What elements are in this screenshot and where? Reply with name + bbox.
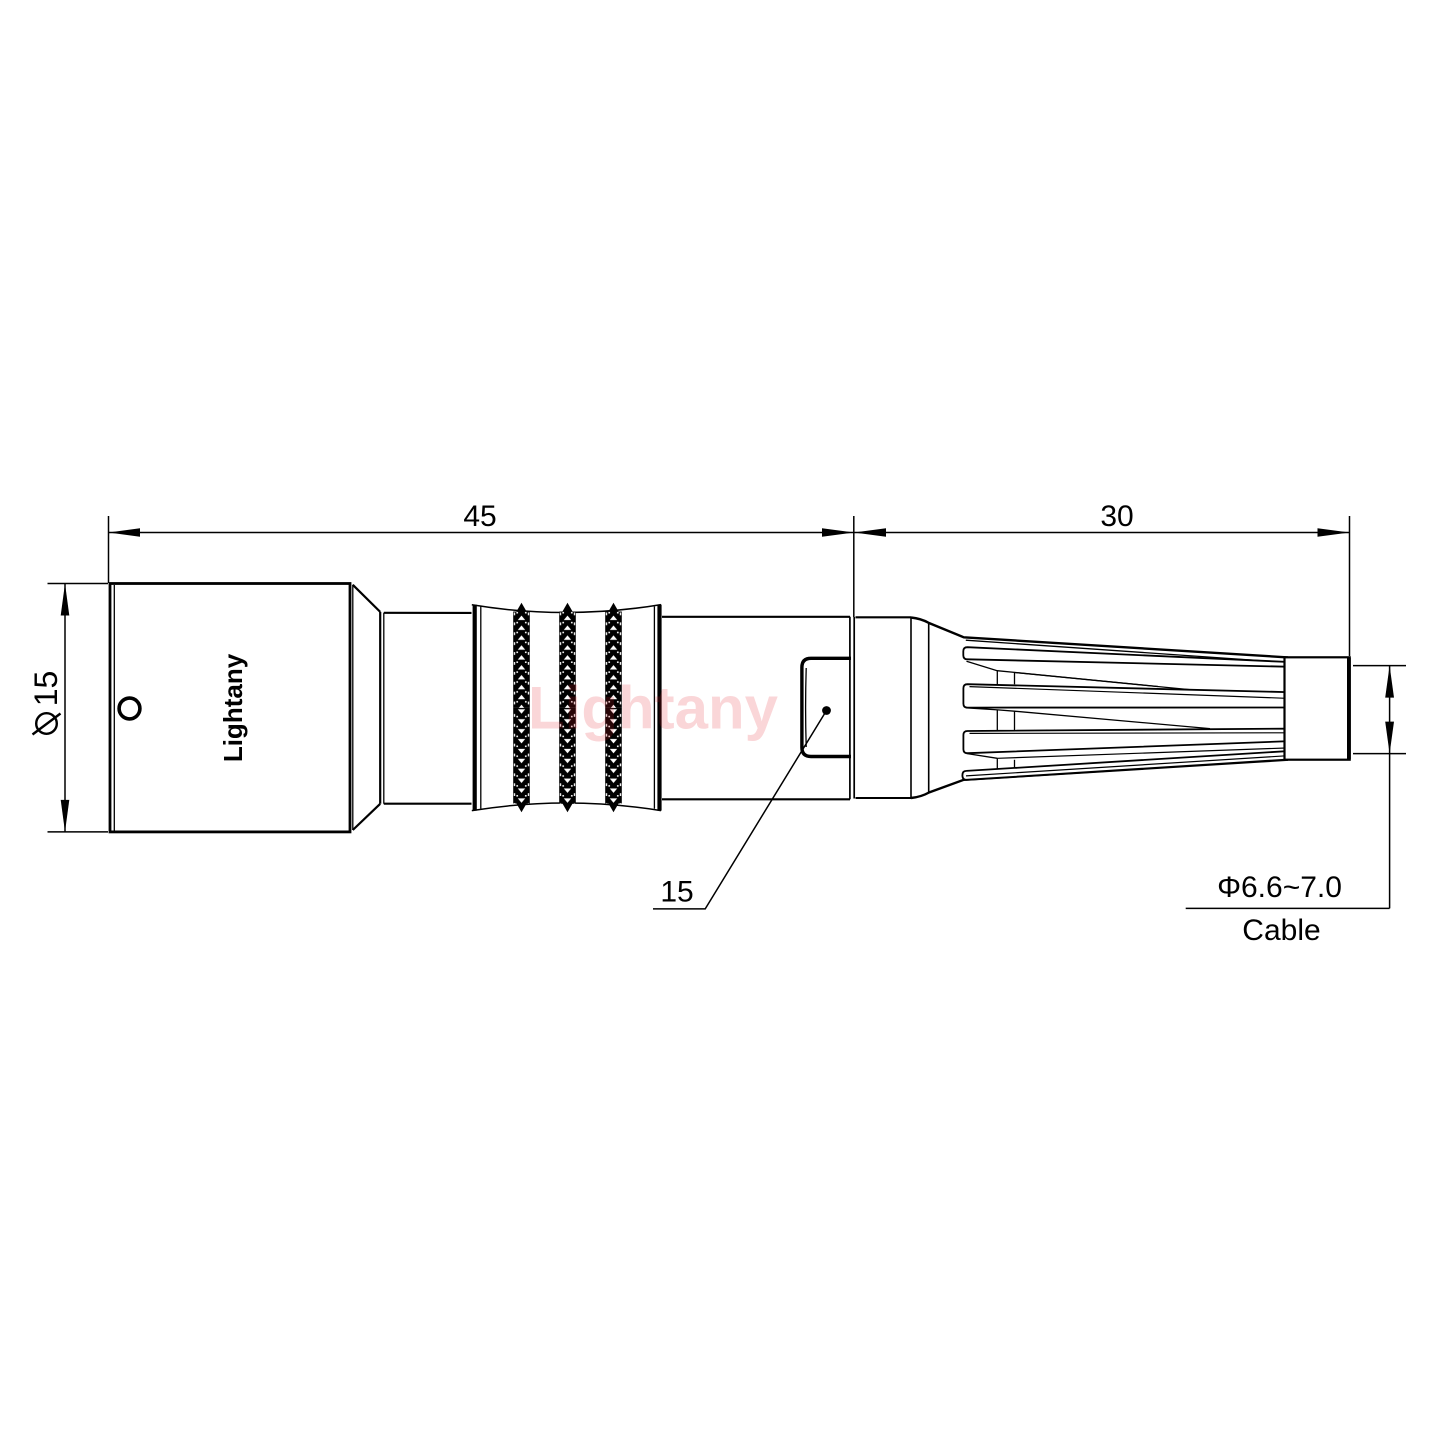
svg-text:30: 30 (1100, 500, 1133, 533)
svg-text:15: 15 (28, 671, 64, 707)
svg-text:15: 15 (660, 876, 693, 909)
svg-text:Φ6.6~7.0: Φ6.6~7.0 (1217, 871, 1342, 904)
svg-text:Cable: Cable (1242, 914, 1320, 947)
svg-text:Lightany: Lightany (218, 653, 248, 762)
svg-text:Lightany: Lightany (528, 675, 779, 742)
svg-text:45: 45 (463, 500, 496, 533)
